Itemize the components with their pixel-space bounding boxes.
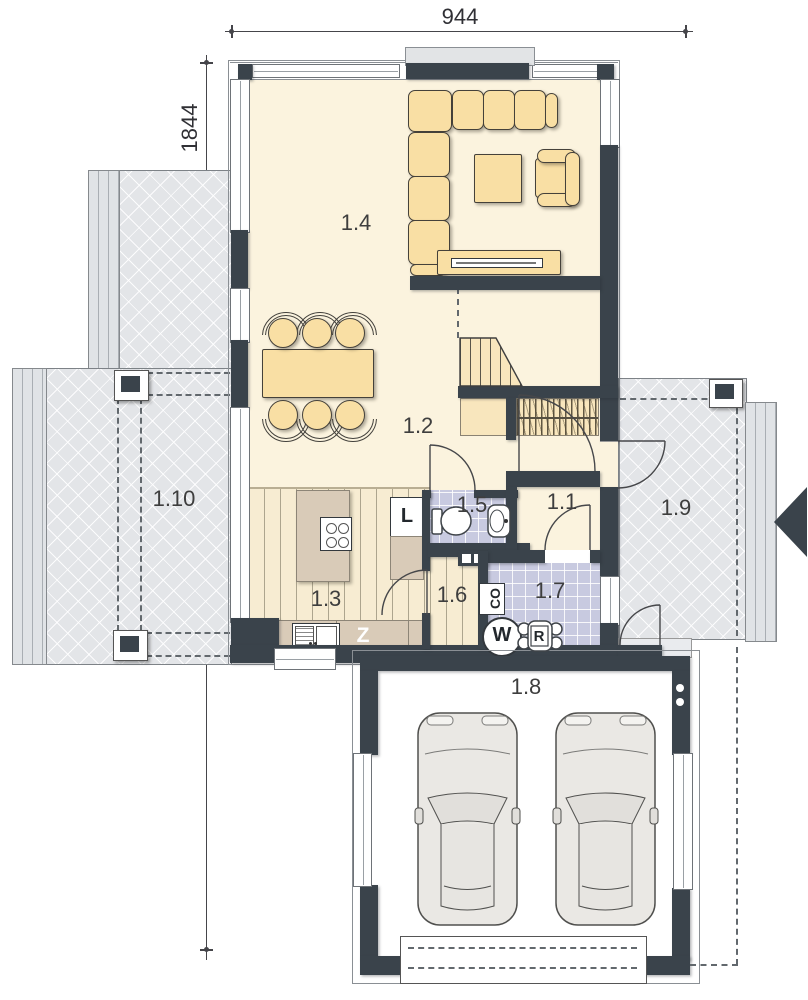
kitchen-cabinet xyxy=(390,536,424,580)
room-label-terrace: 1.10 xyxy=(148,486,200,512)
window xyxy=(230,288,250,343)
burner-icon xyxy=(338,523,349,534)
wardrobe-shelf xyxy=(460,398,508,436)
window xyxy=(600,576,620,626)
garage-door-dashed xyxy=(408,947,637,949)
window xyxy=(600,79,620,148)
boiler: CO xyxy=(479,583,505,615)
entry-arrow-icon xyxy=(774,487,807,557)
garage-door xyxy=(400,936,647,984)
garage-wall-west xyxy=(360,671,378,755)
wall-tv xyxy=(410,276,600,290)
recuperator-label: R xyxy=(531,628,547,646)
sofa-cushion xyxy=(514,90,546,130)
wall-utility-top xyxy=(590,550,600,563)
chair xyxy=(302,400,332,430)
sofa-cushion xyxy=(408,132,450,177)
sink-basin xyxy=(316,626,337,646)
sofa-cushion xyxy=(452,90,484,130)
room-label-kitchen: 1.3 xyxy=(300,586,352,612)
window xyxy=(532,64,600,78)
wall-west xyxy=(231,230,248,289)
dimension-dot xyxy=(229,29,234,34)
chair xyxy=(335,400,365,430)
chair xyxy=(335,318,365,348)
chair xyxy=(302,318,332,348)
floor-plan: 944 1844 xyxy=(0,0,808,1000)
fridge: L xyxy=(390,497,424,537)
dimension-dot xyxy=(204,947,209,952)
roof-overhang-dashed xyxy=(690,964,738,966)
room-label-corridor: 1.6 xyxy=(426,582,478,608)
dimension-line-top xyxy=(225,31,693,32)
wall-corner xyxy=(238,64,252,80)
floor-boundary-line xyxy=(248,487,430,489)
burner-icon xyxy=(326,537,337,548)
sofa-cushion xyxy=(483,90,515,130)
burner-icon xyxy=(326,523,337,534)
chair xyxy=(268,400,298,430)
boiler-label: CO xyxy=(480,584,504,614)
roof-overhang-dashed xyxy=(736,398,738,636)
garage-wall-south xyxy=(643,956,690,975)
roof-overhang-dashed xyxy=(736,647,738,965)
sofa-corner xyxy=(408,90,452,132)
window xyxy=(252,64,400,78)
vent-dot-icon xyxy=(676,684,684,692)
window xyxy=(353,753,372,887)
garage-wall-north xyxy=(360,656,690,671)
dimension-dot xyxy=(683,29,688,34)
tv-screen-line xyxy=(456,262,536,264)
roof-overhang-dashed xyxy=(117,398,119,631)
garage-wall-west xyxy=(360,885,378,960)
chimney-block xyxy=(406,63,529,79)
roof-overhang-dashed xyxy=(147,372,230,374)
wall-wardrobe-divider xyxy=(506,398,516,440)
roof-overhang-dashed xyxy=(147,394,230,396)
entry-door-opening xyxy=(600,441,618,490)
sofa-cushion xyxy=(408,176,450,221)
porch-roof-edge xyxy=(745,402,777,642)
wall-west xyxy=(231,340,248,408)
sofa-armrest xyxy=(545,93,558,128)
vent-dot-icon xyxy=(676,698,684,706)
terrace-column-core xyxy=(121,376,140,392)
door-opening xyxy=(545,550,590,563)
terrace-roof-edge xyxy=(12,368,47,665)
room-label-porch: 1.9 xyxy=(650,495,702,521)
burner-icon xyxy=(338,537,349,548)
dimension-dot xyxy=(204,60,209,65)
roof-overhang-dashed xyxy=(146,632,230,634)
window xyxy=(673,753,693,890)
armchair-back xyxy=(565,152,580,206)
wall-hall xyxy=(506,471,600,487)
wall-utility-top xyxy=(488,550,545,563)
room-label-dining: 1.2 xyxy=(392,413,444,439)
room-label-wc: 1.5 xyxy=(446,492,498,518)
garage-wall-south xyxy=(360,956,402,975)
terrace-roof-edge xyxy=(88,170,120,370)
wall-wc-east xyxy=(506,487,517,557)
chair xyxy=(268,318,298,348)
room-label-living: 1.4 xyxy=(330,210,382,236)
room-label-hall: 1.1 xyxy=(536,489,588,515)
room-label-utility: 1.7 xyxy=(524,578,576,604)
roof-overhang-dashed xyxy=(146,655,230,657)
terrace-column-core xyxy=(120,636,139,652)
coffee-table xyxy=(474,154,522,203)
wall-stairs xyxy=(458,386,618,398)
dimension-depth-label: 1844 xyxy=(177,88,203,168)
wall-corner xyxy=(231,618,279,646)
counter-divider xyxy=(408,621,409,648)
wall-kitchen-east xyxy=(422,490,430,571)
room-label-garage: 1.8 xyxy=(500,674,552,700)
dimension-width-label: 944 xyxy=(428,4,492,30)
fridge-label: L xyxy=(391,498,423,536)
porch-column-core xyxy=(715,384,734,399)
wall-east xyxy=(600,487,618,577)
window xyxy=(230,79,250,233)
garage-door-dashed xyxy=(408,967,637,969)
vent-icon xyxy=(462,554,471,563)
window xyxy=(274,648,336,670)
wall-kitchen-east xyxy=(422,613,430,649)
wardrobe-hanging xyxy=(516,398,599,436)
dining-table xyxy=(262,349,374,398)
tv-screen xyxy=(451,258,543,268)
stair-boundary-dashed xyxy=(457,288,459,338)
wall-corner xyxy=(597,64,614,80)
window xyxy=(230,407,250,623)
garage-wall-east xyxy=(672,888,690,960)
garage-outline xyxy=(352,650,700,984)
roof-overhang-dashed xyxy=(140,398,142,631)
